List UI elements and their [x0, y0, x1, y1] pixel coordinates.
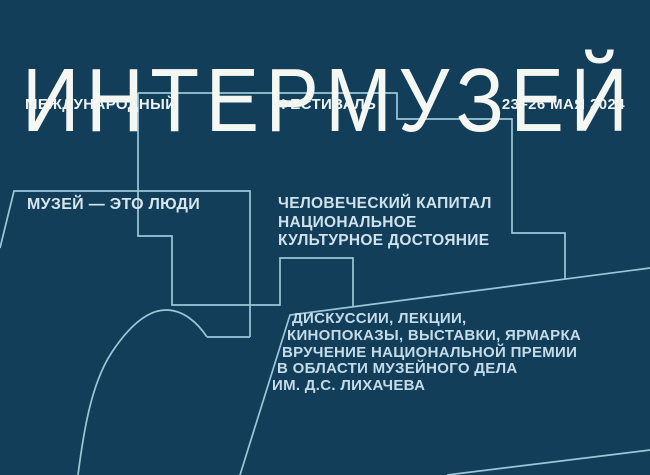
festival-dates: 23–26 МАЯ 2024 — [502, 96, 625, 113]
events-line: В ОБЛАСТИ МУЗЕЙНОГО ДЕЛА — [277, 361, 581, 378]
events-line: ДИСКУССИИ, ЛЕКЦИИ, — [292, 311, 581, 328]
header-row: МЕЖДУНАРОДНЫЙ ФЕСТИВАЛЬ 23–26 МАЯ 2024 — [0, 96, 650, 114]
theme-line: ЧЕЛОВЕЧЕСКИЙ КАПИТАЛ — [278, 195, 492, 214]
slogan-text: МУЗЕЙ — ЭТО ЛЮДИ — [27, 196, 200, 214]
theme-line: КУЛЬТУРНОЕ ДОСТОЯНИЕ — [278, 232, 492, 251]
perspective-wall-bottom — [447, 450, 650, 475]
events-line: КИНОПОКАЗЫ, ВЫСТАВКИ, ЯРМАРКА — [287, 328, 581, 345]
subtitle-festival: ФЕСТИВАЛЬ — [277, 96, 376, 113]
events-line: ВРУЧЕНИЕ НАЦИОНАЛЬНОЙ ПРЕМИИ — [282, 345, 581, 362]
theme-line: НАЦИОНАЛЬНОЕ — [278, 214, 492, 233]
events-line: ИМ. Д.С. ЛИХАЧЕВА — [272, 378, 581, 395]
poster-background: ИНТЕРМУЗЕЙ МЕЖДУНАРОДНЫЙ ФЕСТИВАЛЬ 23–26… — [0, 0, 650, 475]
theme-block: ЧЕЛОВЕЧЕСКИЙ КАПИТАЛ НАЦИОНАЛЬНОЕ КУЛЬТУ… — [278, 195, 492, 251]
arch-curve — [78, 310, 207, 475]
subtitle-international: МЕЖДУНАРОДНЫЙ — [25, 96, 176, 113]
events-block: ДИСКУССИИ, ЛЕКЦИИ, КИНОПОКАЗЫ, ВЫСТАВКИ,… — [272, 311, 581, 395]
